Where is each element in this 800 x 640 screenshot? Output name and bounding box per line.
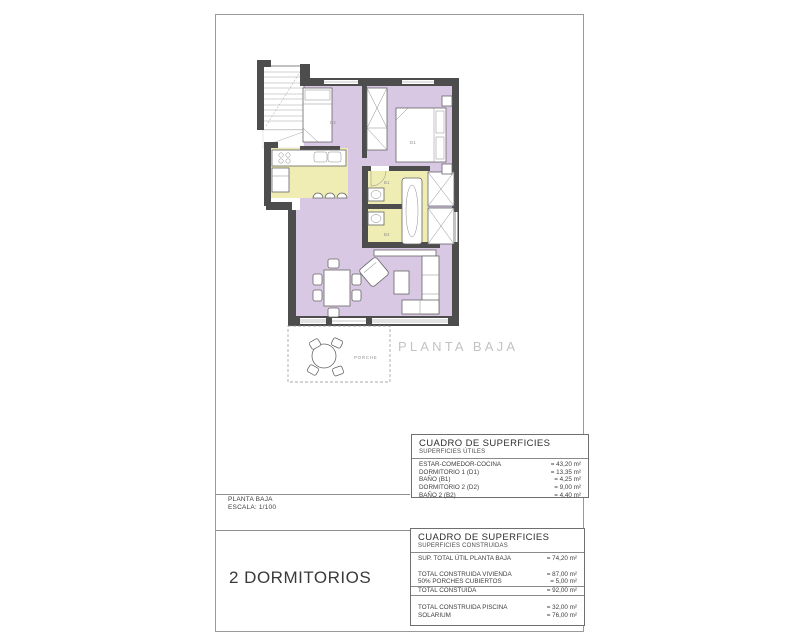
drawing-sheet-page: PORCHE D2 D1 B1 B2 PLANTA BAJA PLANTA BA…: [0, 0, 800, 640]
dormitorios-label: 2 DORMITORIOS: [229, 568, 371, 588]
table-gap: [418, 563, 577, 571]
wardrobe: [367, 88, 387, 150]
porch: PORCHE: [288, 326, 390, 382]
table-row: ESTAR-COMEDOR-COCINA= 43,20 m²: [419, 461, 581, 469]
table-utiles-subtitle: SUPERFICIES ÚTILES: [419, 449, 581, 456]
table-row: SUP. TOTAL ÚTIL PLANTA BAJA= 74,20 m²: [418, 555, 577, 563]
table-row: 50% PORCHES CUBIERTOS= 5,00 m²: [418, 578, 577, 586]
title-block: PLANTA BAJA ESCALA: 1/100: [228, 496, 276, 512]
table-row: TOTAL CONSTRUIDA VIVIENDA= 87,00 m²: [418, 571, 577, 579]
tv-sideboard: [374, 250, 436, 256]
bar-stools: [313, 193, 347, 198]
table-row: SOLARIUM= 76,00 m²: [418, 612, 577, 620]
surface-table-utiles: CUADRO DE SUPERFICIES SUPERFICIES ÚTILES…: [411, 434, 589, 498]
fridge: [272, 168, 289, 192]
table-row: BAÑO (B1)= 4,25 m²: [419, 476, 581, 484]
bathtub: [402, 178, 422, 244]
title-block-plan-name: PLANTA BAJA: [228, 496, 276, 504]
titleblock-divider-bottom: [216, 530, 410, 531]
table-row-total: TOTAL CONSTUIDA= 92,00 m²: [411, 586, 584, 596]
table-row: DORMITORIO 2 (D2)= 9,00 m²: [419, 484, 581, 492]
table-row: BAÑO 2 (B2)= 4,40 m²: [419, 492, 581, 500]
table-construidas-subtitle: SUPERFICIES CONSTRUIDAS: [418, 543, 577, 550]
bed-double-d1: [396, 96, 452, 174]
room-label-d2: D2: [330, 120, 336, 125]
floor-plan: PORCHE D2 D1 B1 B2 PLANTA BAJA: [215, 14, 583, 492]
table-utiles-title: CUADRO DE SUPERFICIES: [419, 439, 581, 449]
sink-b2: [368, 212, 384, 225]
titleblock-divider-top: [216, 494, 410, 495]
kitchen-counter: [272, 150, 346, 166]
closet-shelves: [428, 172, 454, 244]
room-label-b1: B1: [384, 180, 390, 185]
room-label-d1: D1: [410, 140, 416, 145]
side-table: [394, 271, 409, 294]
porch-label: PORCHE: [354, 355, 377, 360]
plan-caption: PLANTA BAJA: [398, 339, 518, 354]
sink-b1: [368, 188, 384, 201]
table-divider: [412, 458, 588, 459]
bed-single-d2: [303, 88, 332, 142]
surface-table-construidas: CUADRO DE SUPERFICIES SUPERFICIES CONSTR…: [410, 528, 585, 626]
title-block-scale: ESCALA: 1/100: [228, 504, 276, 512]
table-construidas-title: CUADRO DE SUPERFICIES: [418, 533, 577, 543]
room-label-b2: B2: [384, 232, 390, 237]
table-row: TOTAL CONSTRUIDA PISCINA= 32,00 m²: [418, 604, 577, 612]
staircase: [263, 66, 304, 148]
table-divider: [411, 552, 584, 553]
table-gap: [418, 596, 577, 604]
